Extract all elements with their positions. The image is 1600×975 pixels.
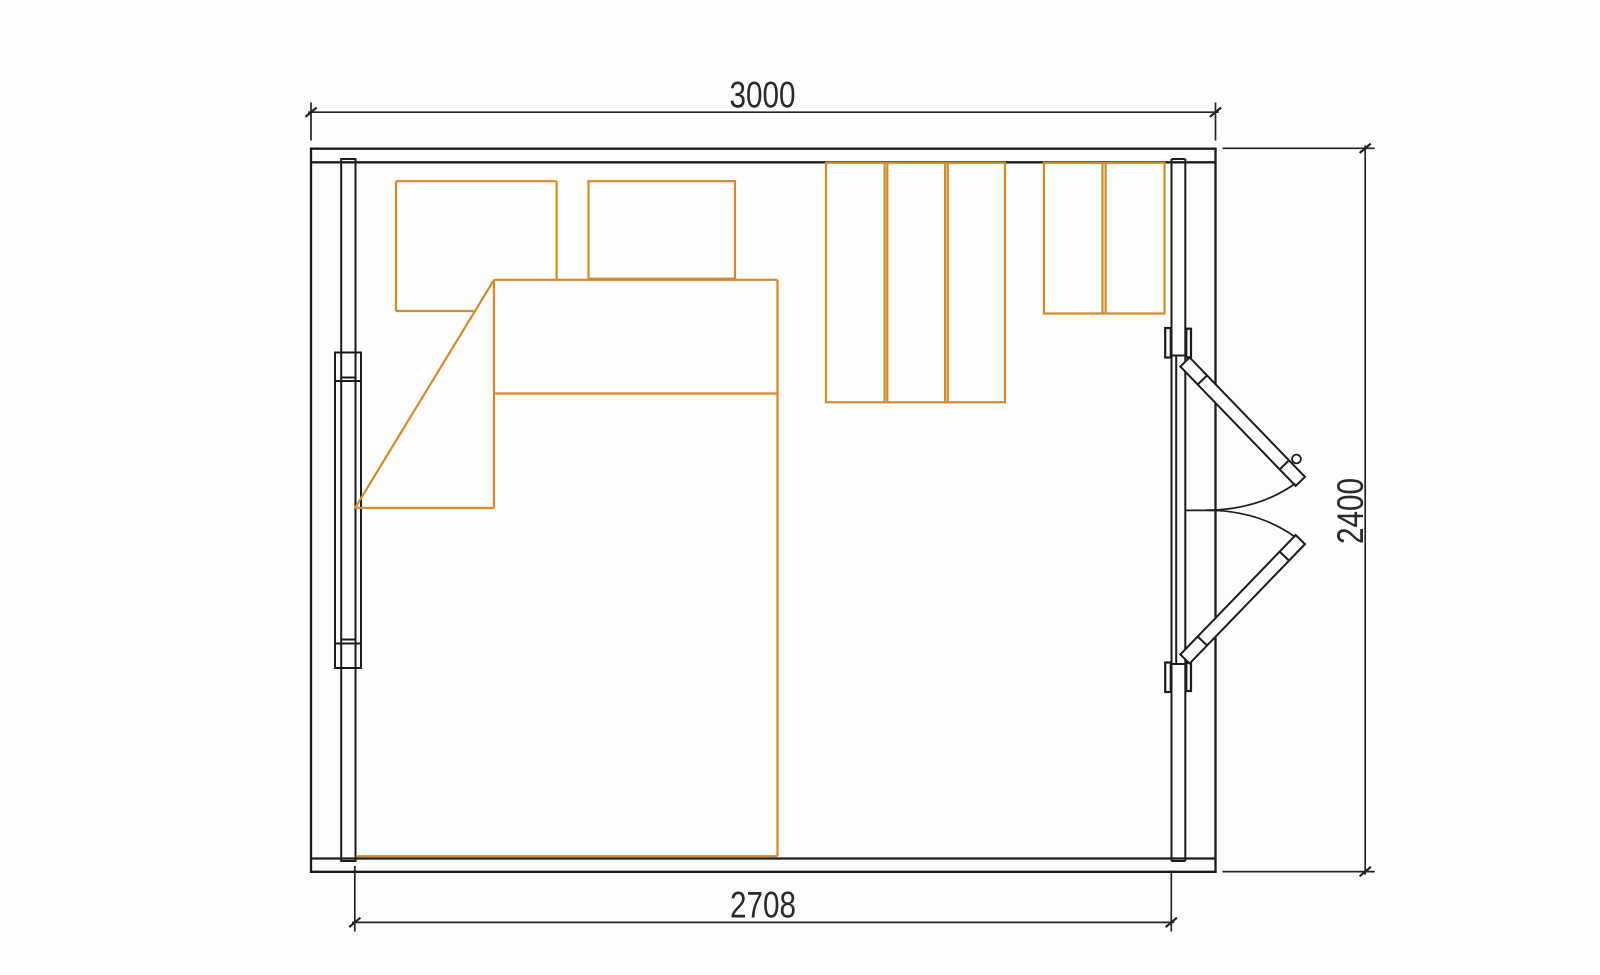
svg-text:2708: 2708 [730, 885, 796, 926]
svg-text:2400: 2400 [1330, 478, 1371, 544]
svg-text:3000: 3000 [730, 75, 796, 116]
